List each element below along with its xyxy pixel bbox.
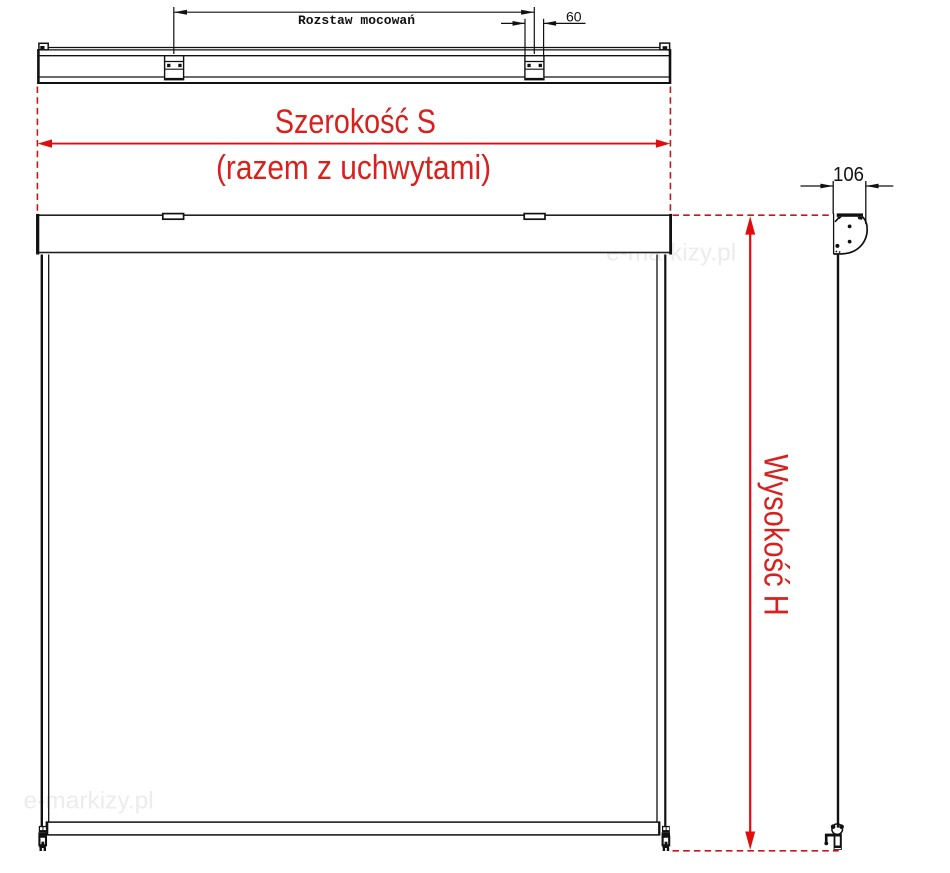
svg-text:Rozstaw mocowań: Rozstaw mocowań [298, 13, 415, 28]
svg-text:106: 106 [833, 164, 864, 186]
svg-text:Wysokość H: Wysokość H [757, 454, 795, 616]
svg-text:e-markizy.pl: e-markizy.pl [24, 788, 154, 815]
svg-text:Szerokość S: Szerokość S [275, 103, 436, 141]
svg-text:60: 60 [566, 9, 582, 25]
svg-text:(razem z uchwytami): (razem z uchwytami) [216, 149, 491, 187]
